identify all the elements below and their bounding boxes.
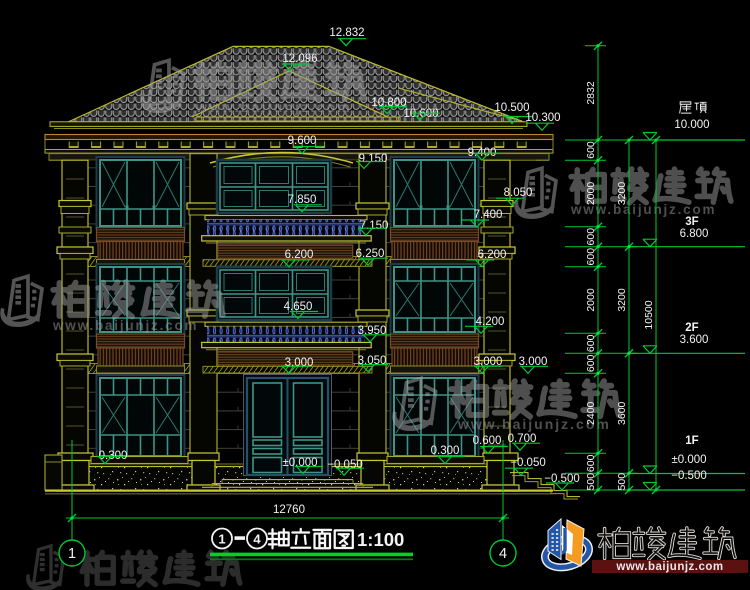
svg-text:10500: 10500 — [643, 300, 655, 329]
svg-text:±0.000: ±0.000 — [671, 454, 706, 466]
svg-text:9.600: 9.600 — [288, 135, 317, 147]
svg-text:7.850: 7.850 — [288, 194, 317, 206]
svg-text:12.832: 12.832 — [329, 27, 364, 39]
svg-text:12760: 12760 — [273, 504, 305, 516]
svg-text:0.300: 0.300 — [431, 445, 460, 457]
svg-text:−0.050: −0.050 — [510, 457, 546, 469]
svg-text:1F: 1F — [685, 435, 698, 447]
svg-text:6.200: 6.200 — [285, 249, 314, 261]
svg-text:3200: 3200 — [616, 182, 628, 206]
svg-text:1:100: 1:100 — [357, 529, 404, 550]
svg-text:www.baijunjz.com: www.baijunjz.com — [52, 318, 198, 333]
svg-text:±0.000: ±0.000 — [282, 457, 317, 469]
svg-text:600: 600 — [585, 354, 597, 372]
svg-text:6.200: 6.200 — [478, 249, 507, 261]
svg-text:7.400: 7.400 — [474, 209, 503, 221]
svg-text:7.150: 7.150 — [360, 220, 389, 232]
svg-text:8.050: 8.050 — [504, 187, 533, 199]
svg-text:1: 1 — [218, 532, 225, 547]
svg-text:600: 600 — [585, 141, 597, 159]
svg-text:600: 600 — [585, 228, 597, 246]
svg-text:12.096: 12.096 — [282, 53, 317, 65]
svg-text:1: 1 — [68, 546, 76, 562]
svg-text:www.baijunjz.com: www.baijunjz.com — [615, 561, 723, 573]
svg-text:3.000: 3.000 — [285, 357, 314, 369]
svg-text:www.baijunjz.com: www.baijunjz.com — [195, 99, 352, 115]
svg-text:9.150: 9.150 — [359, 153, 388, 165]
svg-text:3F: 3F — [685, 216, 698, 228]
svg-text:4: 4 — [499, 546, 507, 562]
svg-text:10.000: 10.000 — [674, 119, 709, 131]
svg-text:3600: 3600 — [616, 401, 628, 425]
svg-text:600: 600 — [585, 248, 597, 266]
svg-text:6.800: 6.800 — [680, 228, 709, 240]
svg-text:−0.050: −0.050 — [327, 459, 363, 471]
svg-text:−0.500: −0.500 — [671, 470, 707, 482]
svg-text:10.800: 10.800 — [371, 97, 406, 109]
svg-text:500: 500 — [585, 473, 597, 491]
svg-text:0.600: 0.600 — [473, 435, 502, 447]
svg-text:500: 500 — [616, 473, 628, 491]
svg-text:2832: 2832 — [585, 81, 597, 105]
svg-text:2400: 2400 — [585, 401, 597, 425]
svg-text:2000: 2000 — [585, 288, 597, 312]
svg-text:2000: 2000 — [585, 182, 597, 206]
svg-text:600: 600 — [585, 454, 597, 472]
svg-text:4: 4 — [253, 532, 261, 547]
svg-text:2F: 2F — [685, 322, 698, 334]
svg-text:3200: 3200 — [616, 288, 628, 312]
svg-text:10.600: 10.600 — [403, 108, 438, 120]
svg-text:3.600: 3.600 — [680, 334, 709, 346]
svg-text:10.500: 10.500 — [494, 102, 529, 114]
svg-text:10.300: 10.300 — [525, 112, 560, 124]
svg-text:600: 600 — [585, 334, 597, 352]
